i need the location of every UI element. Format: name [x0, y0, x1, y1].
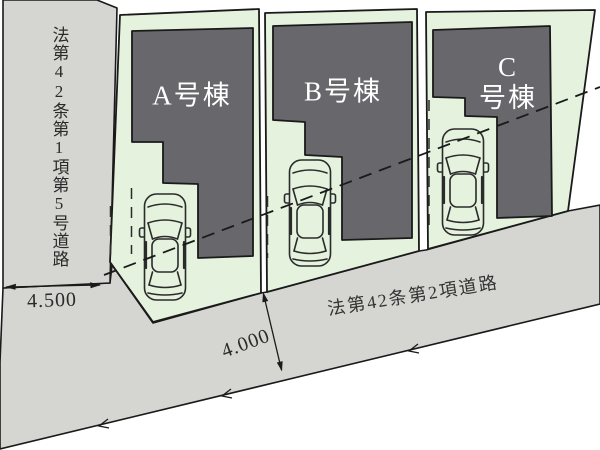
site-plan-drawing: [0, 0, 600, 450]
road-left-area: [3, 0, 117, 288]
site-plan: 法第42条第1項第5号道路 A号棟 B号棟 C 号棟 法第42条第2項道路 4.…: [0, 0, 600, 450]
car-b-icon: [285, 160, 336, 266]
car-a-icon: [140, 194, 191, 300]
